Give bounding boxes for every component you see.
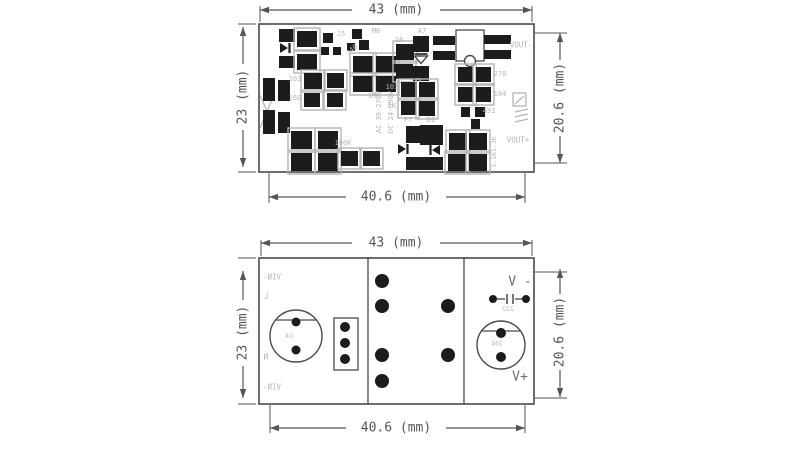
- label-103-left: 103: [289, 75, 302, 83]
- smd-pad: [323, 33, 333, 43]
- label-v-neg: V -: [508, 275, 531, 290]
- through-hole: [375, 299, 389, 313]
- label-neutral-n: N: [263, 353, 268, 362]
- smd-pad: [297, 31, 317, 47]
- smd-pad: [333, 47, 341, 55]
- smd-pad: [413, 36, 429, 52]
- arrowhead: [269, 194, 278, 200]
- arrowhead: [516, 194, 525, 200]
- smd-pad: [469, 154, 487, 171]
- dim-bottom-width: 40.6 (mm): [361, 190, 431, 205]
- dim-right-height: 20.6 (mm): [553, 63, 568, 133]
- label-ac-range: AC 30-270V: [375, 90, 383, 133]
- smd-pad: [279, 29, 295, 42]
- smd-pad: [448, 154, 466, 171]
- label-431: 431: [483, 107, 496, 115]
- dim-bottom-width: 40.6 (mm): [361, 421, 431, 436]
- dim-top-width: 43 (mm): [369, 3, 424, 18]
- smd-pad: [420, 125, 443, 145]
- smd-pad: [279, 56, 295, 68]
- smd-pad: [401, 101, 416, 115]
- label-vout-pos: VOUT+: [507, 136, 530, 145]
- smd-pad: [484, 35, 511, 44]
- smd-pad: [469, 133, 487, 150]
- arrowhead: [240, 27, 246, 36]
- label-line-l: L: [263, 292, 268, 301]
- through-hole: [340, 322, 350, 332]
- smd-pad: [327, 93, 343, 107]
- through-hole: [441, 348, 455, 362]
- label-vin-neg-top: VIN-: [263, 273, 281, 282]
- label-c4: C4: [285, 332, 293, 340]
- through-hole: [292, 318, 301, 327]
- through-hole: [496, 352, 506, 362]
- label-103-mid: 103: [386, 83, 399, 91]
- label-104: 104: [494, 90, 507, 98]
- label-vin-neg-bottom: VIN-: [263, 383, 281, 392]
- label-5k1-1k3: 5.1K1.3K: [490, 136, 498, 167]
- arrowhead: [557, 388, 563, 397]
- smd-pad: [471, 119, 480, 129]
- label-vout-neg: VOUT-: [510, 41, 533, 50]
- through-hole: [292, 346, 301, 355]
- through-hole: [441, 299, 455, 313]
- dim-right-height: 20.6 (mm): [553, 297, 568, 367]
- smd-pad: [263, 110, 275, 134]
- label-m0: M0: [372, 27, 380, 35]
- smd-pad: [291, 131, 312, 149]
- label-d2: D2: [427, 116, 435, 124]
- arrowhead: [523, 7, 532, 13]
- arrowhead: [240, 158, 246, 167]
- smd-pad: [476, 67, 491, 82]
- label-16: 16: [395, 36, 403, 44]
- smd-pad: [449, 133, 467, 150]
- smd-pad: [291, 153, 312, 171]
- smd-pad: [461, 107, 470, 117]
- label-270: 270: [494, 70, 507, 78]
- label-a7: A7: [418, 27, 426, 35]
- smd-pad: [353, 76, 373, 92]
- through-hole: [375, 374, 389, 388]
- smd-pad: [359, 40, 369, 50]
- through-hole: [375, 348, 389, 362]
- smd-pad: [352, 29, 362, 39]
- through-hole: [340, 338, 350, 348]
- diagram-canvas: 43 (mm)23 (mm)20.6 (mm)40.6 (mm)J5M03401…: [0, 0, 800, 450]
- pcb-bottom-view: 43 (mm)23 (mm)20.6 (mm)40.6 (mm)VIN-LC4N…: [236, 236, 568, 436]
- smd-pad: [458, 87, 473, 102]
- smd-pad: [327, 73, 344, 88]
- smd-pad: [419, 82, 435, 97]
- label-f7: F7: [404, 116, 412, 124]
- smd-pad: [304, 93, 320, 107]
- through-hole: [496, 328, 506, 338]
- dim-left-height: 23 (mm): [236, 70, 251, 125]
- through-hole: [522, 295, 530, 303]
- smd-pad: [263, 78, 275, 101]
- smd-pad: [363, 151, 380, 166]
- smd-pad: [321, 47, 329, 55]
- page: 43 (mm)23 (mm)20.6 (mm)40.6 (mm)J5M03401…: [0, 0, 800, 450]
- label-104-cap: 104: [491, 341, 502, 348]
- transformer-notch: [465, 56, 476, 67]
- label-dc-range: DC 24-390V: [387, 90, 395, 133]
- arrowhead: [261, 240, 270, 246]
- arrowhead: [523, 240, 532, 246]
- through-hole: [489, 295, 497, 303]
- dim-left-height: 23 (mm): [236, 306, 251, 361]
- smd-pad: [433, 51, 455, 60]
- smd-pad: [476, 87, 491, 102]
- smd-pad: [297, 54, 317, 70]
- pcb-top-view: 43 (mm)23 (mm)20.6 (mm)40.6 (mm)J5M03401…: [236, 3, 568, 205]
- arrowhead: [270, 425, 279, 431]
- label-j5: J5: [337, 30, 345, 38]
- label-100k: 100K: [335, 139, 353, 147]
- smd-pad: [396, 44, 414, 60]
- through-hole: [375, 274, 389, 288]
- smd-pad: [353, 56, 373, 73]
- smd-pad: [484, 50, 511, 59]
- smd-pad: [396, 64, 413, 79]
- arrowhead: [260, 7, 269, 13]
- smd-pad: [304, 73, 322, 89]
- arrowhead: [516, 425, 525, 431]
- through-hole: [340, 354, 350, 364]
- smd-pad: [458, 67, 473, 82]
- smd-pad: [318, 153, 338, 171]
- label-222: 222: [502, 305, 514, 313]
- arrowhead: [557, 269, 563, 278]
- label-160: 160: [289, 94, 302, 102]
- label-v-pos: V+: [512, 370, 528, 385]
- smd-pad: [341, 151, 358, 166]
- arrowhead: [557, 33, 563, 42]
- arrowhead: [240, 271, 246, 280]
- arrowhead: [240, 389, 246, 398]
- smd-pad: [420, 157, 443, 170]
- dim-top-width: 43 (mm): [369, 236, 424, 251]
- smd-pad: [401, 82, 417, 97]
- arrowhead: [557, 154, 563, 163]
- smd-pad: [419, 101, 435, 116]
- smd-pad: [433, 36, 455, 45]
